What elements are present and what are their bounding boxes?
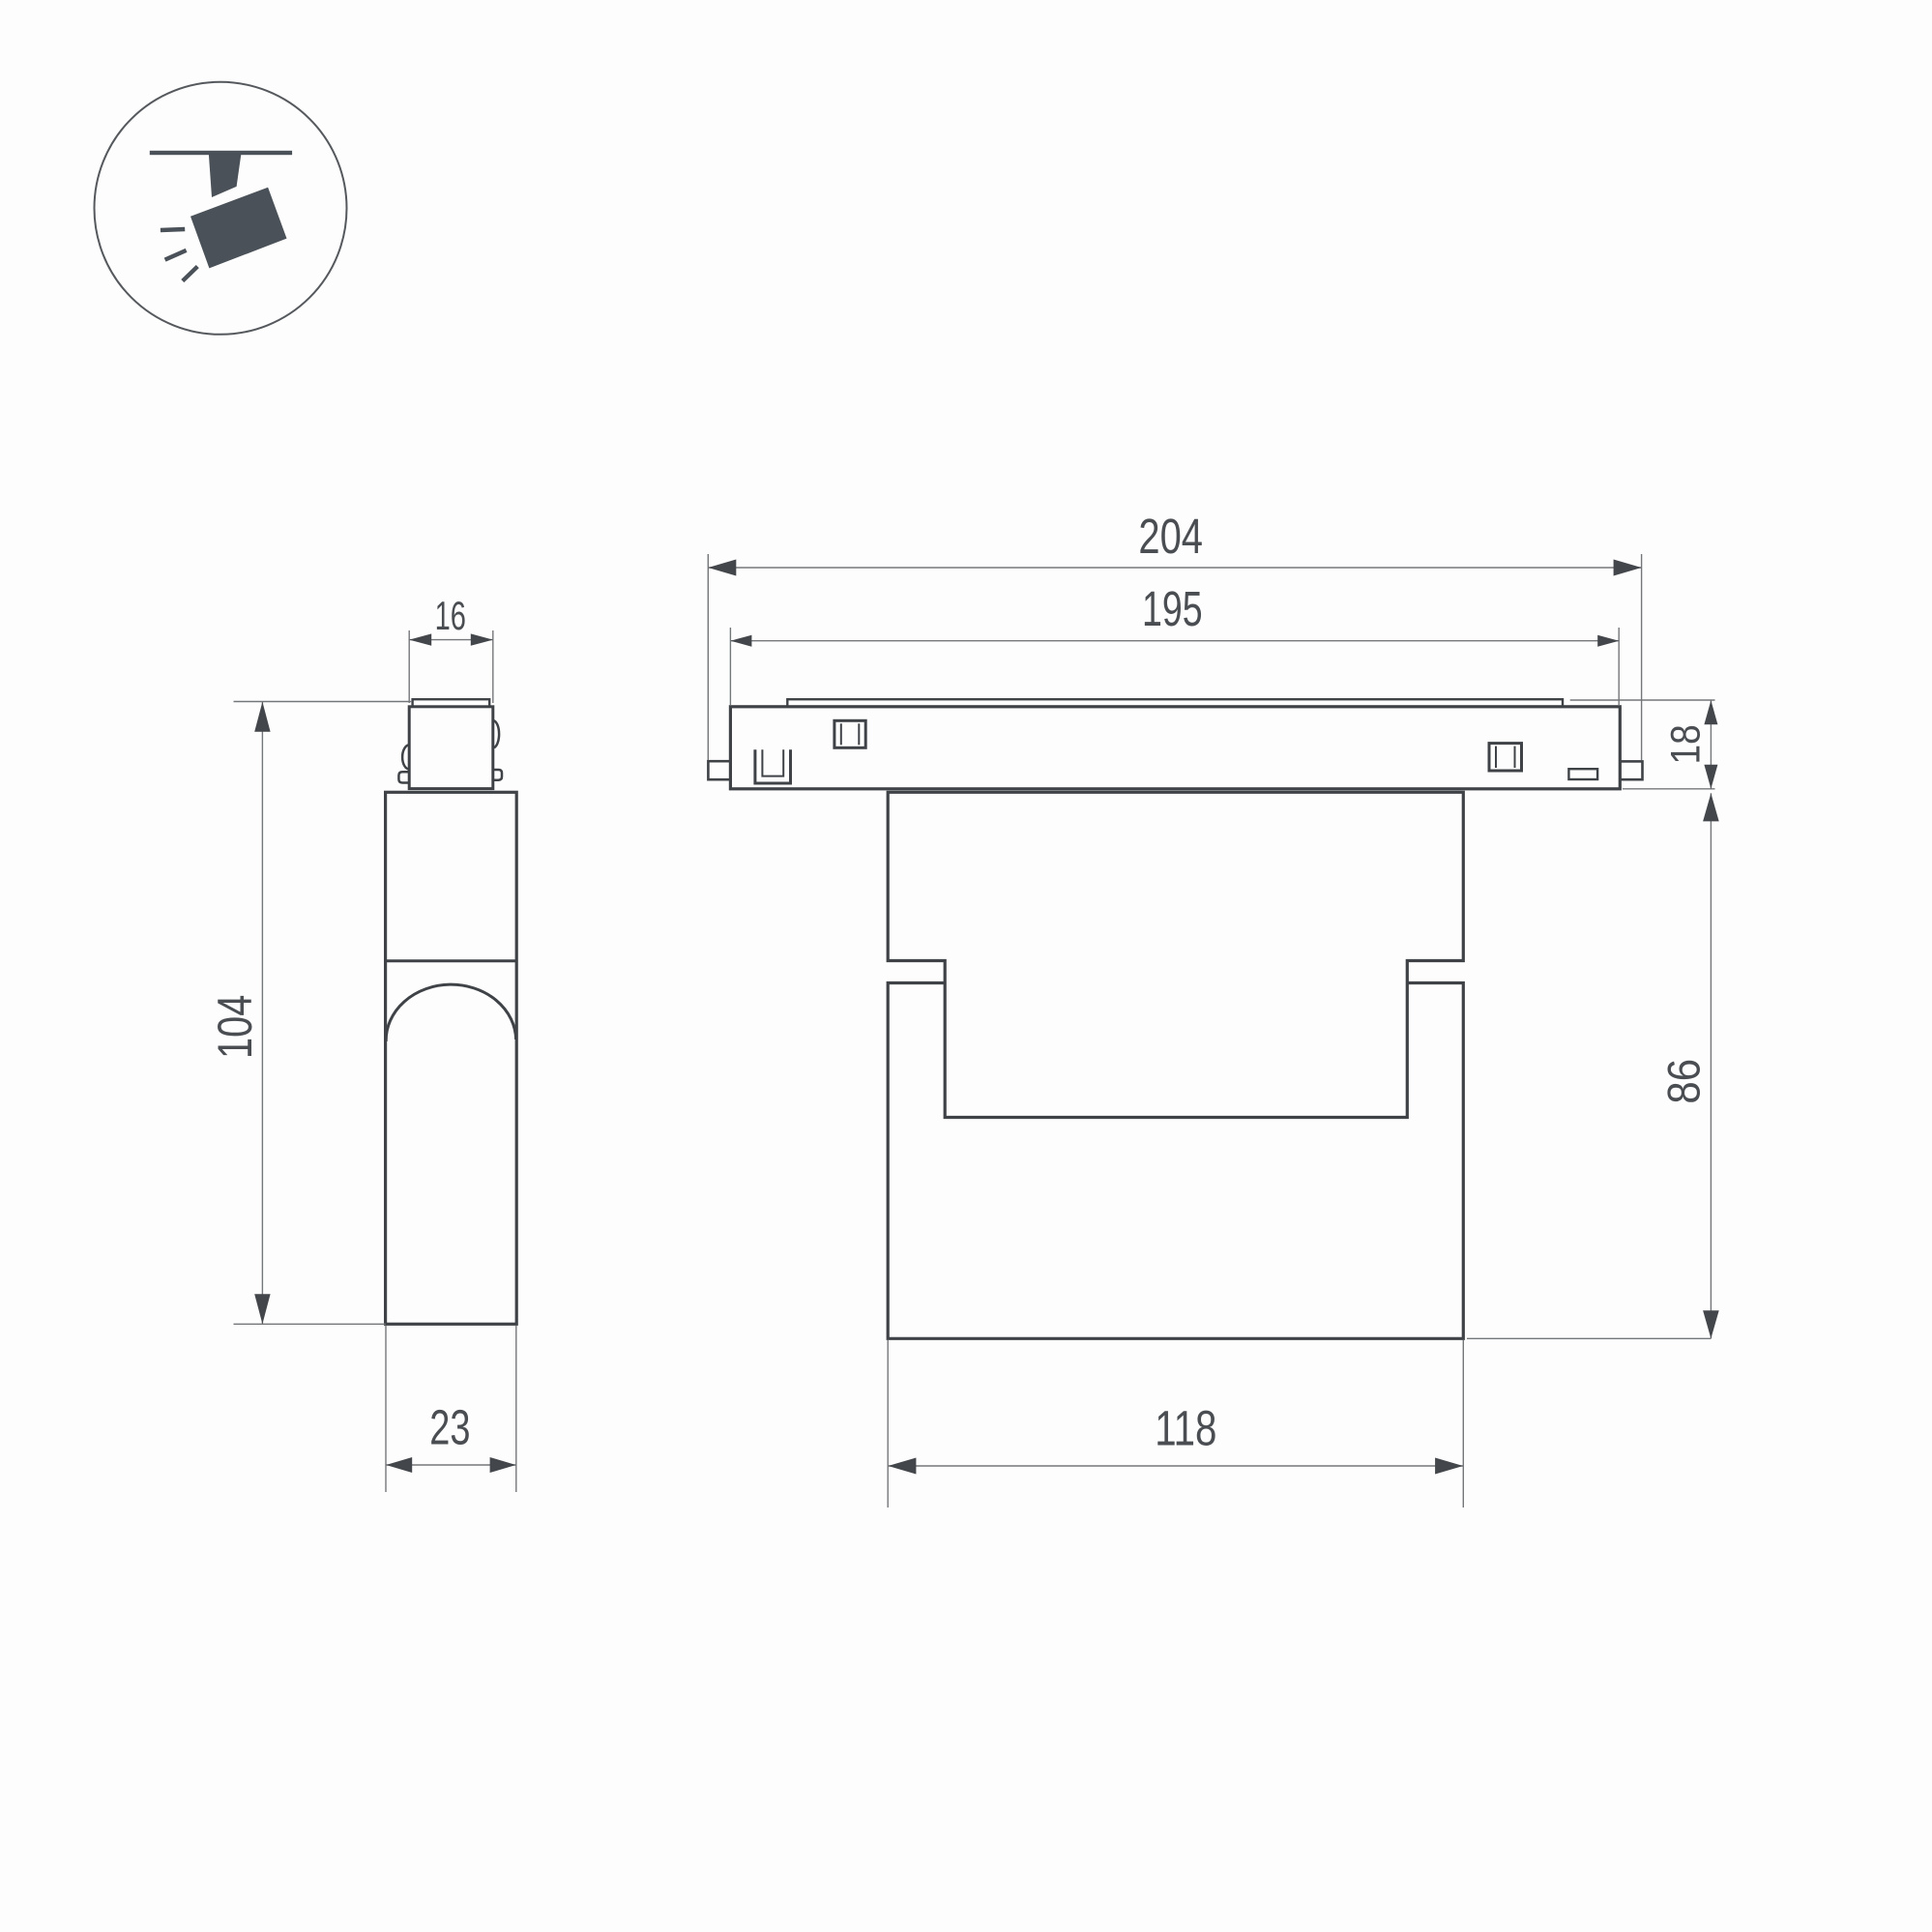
svg-text:86: 86 bbox=[1657, 1059, 1709, 1104]
svg-text:18: 18 bbox=[1663, 724, 1709, 764]
svg-text:204: 204 bbox=[1138, 509, 1203, 564]
svg-text:195: 195 bbox=[1142, 581, 1203, 636]
svg-text:16: 16 bbox=[435, 593, 466, 638]
svg-text:104: 104 bbox=[208, 995, 262, 1059]
svg-text:118: 118 bbox=[1155, 1400, 1216, 1455]
svg-text:23: 23 bbox=[429, 1400, 470, 1455]
